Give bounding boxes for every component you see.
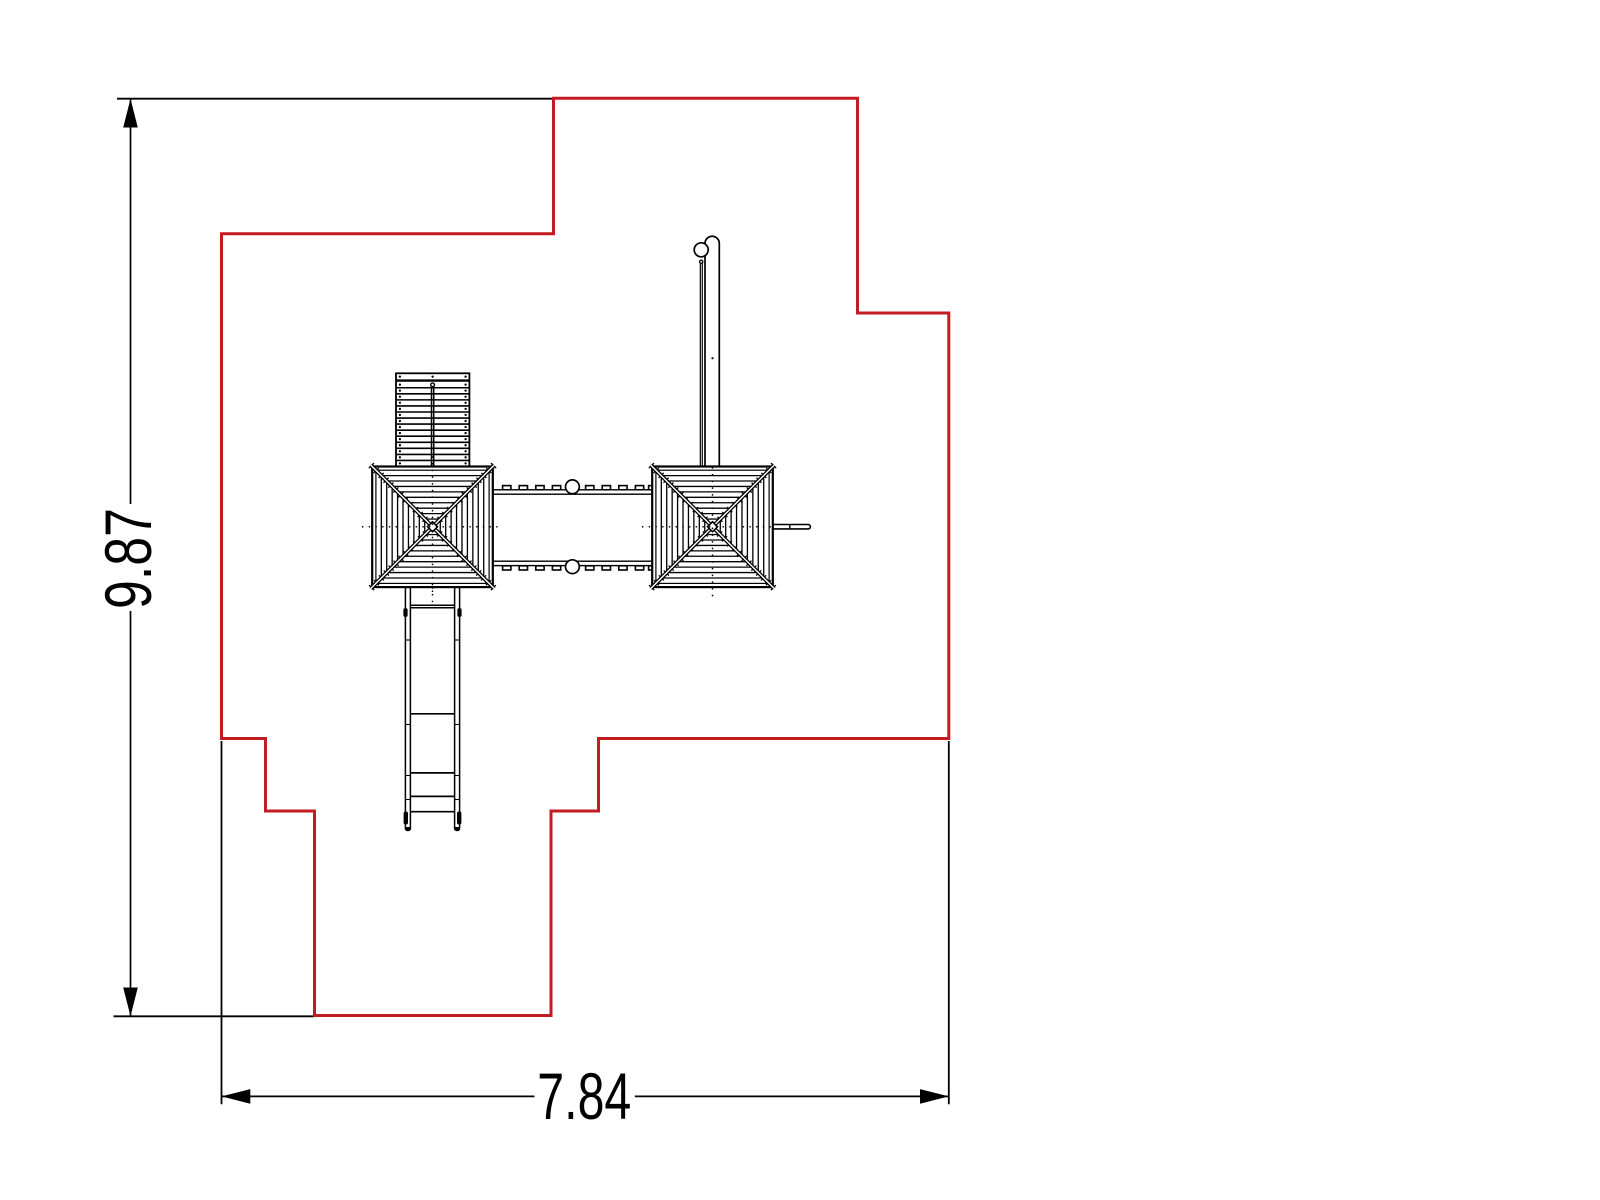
svg-text:9.87: 9.87 xyxy=(91,508,165,609)
svg-text:7.84: 7.84 xyxy=(537,1059,631,1133)
